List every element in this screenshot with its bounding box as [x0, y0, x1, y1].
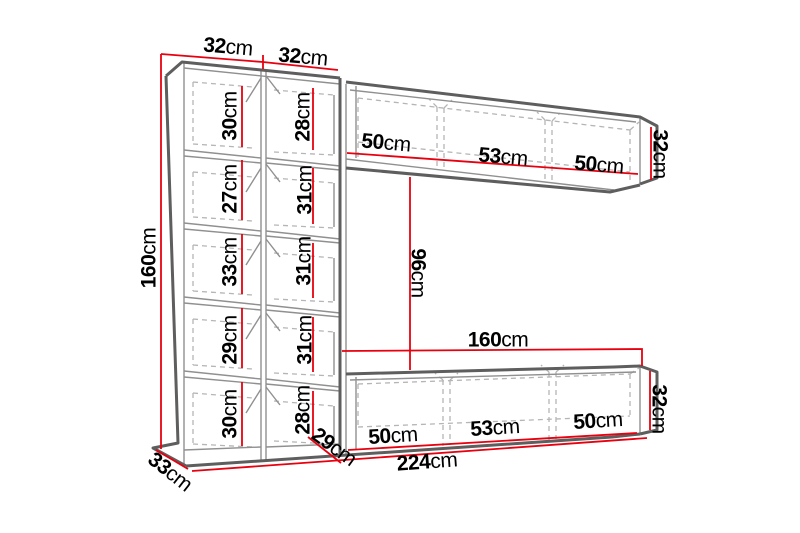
dim-left-col-cell-2: 27cm	[220, 164, 241, 213]
dim-mid-col-cell-5: 28cm	[293, 385, 314, 434]
dim-top-cabinet-section-3: 50cm	[573, 152, 624, 177]
dim-top-width-1: 32cm	[202, 34, 253, 59]
dim-mid-col-cell-3: 31cm	[294, 236, 315, 285]
furniture-dimension-diagram: 32cm 32cm 160cm 30cm 27cm 33cm 29cm 30cm…	[0, 0, 800, 533]
dim-left-col-cell-5: 30cm	[220, 389, 241, 438]
dim-top-cabinet-height: 32cm	[650, 129, 671, 178]
dim-left-height: 160cm	[139, 228, 160, 289]
dim-total-width: 224cm	[396, 449, 458, 474]
dim-left-col-cell-3: 33cm	[220, 237, 241, 286]
dim-top-cabinet-section-1: 50cm	[360, 130, 411, 155]
dim-left-col-cell-4: 29cm	[220, 315, 241, 364]
dim-left-col-cell-1: 30cm	[220, 91, 241, 140]
dim-bottom-cabinet-section-1: 50cm	[368, 424, 419, 448]
dim-top-width-2: 32cm	[277, 44, 328, 69]
dim-opening-width: 160cm	[468, 330, 529, 351]
dim-top-cabinet-section-2: 53cm	[477, 144, 528, 169]
dim-mid-col-cell-2: 31cm	[295, 165, 316, 214]
dim-bottom-cabinet-section-2: 53cm	[470, 416, 521, 440]
dim-bottom-cabinet-height: 32cm	[649, 384, 670, 433]
dim-bottom-cabinet-section-3: 50cm	[573, 409, 624, 433]
dim-mid-col-cell-1: 28cm	[293, 92, 314, 141]
dim-opening-height: 96cm	[408, 248, 429, 297]
dim-mid-col-cell-4: 31cm	[295, 315, 316, 364]
